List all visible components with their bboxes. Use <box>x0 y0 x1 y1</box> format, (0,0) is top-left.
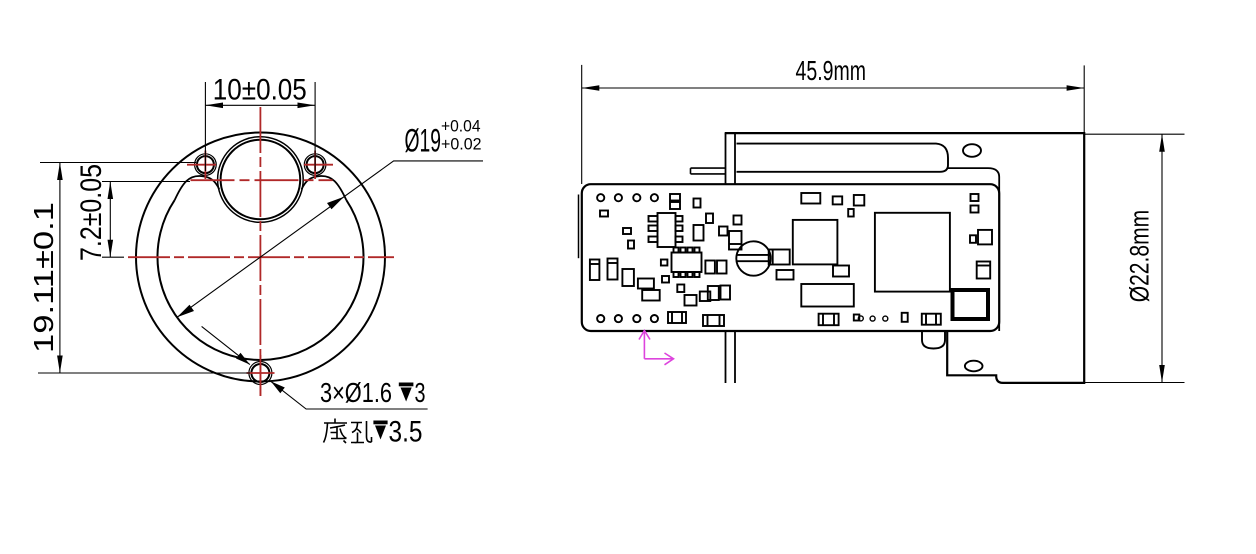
svg-text:3: 3 <box>415 377 426 408</box>
svg-text:10±0.05: 10±0.05 <box>213 74 307 107</box>
svg-text:3.5: 3.5 <box>389 416 423 449</box>
svg-text:Ø22.8mm: Ø22.8mm <box>1125 210 1155 303</box>
svg-text:+0.04: +0.04 <box>441 117 481 136</box>
svg-text:+0.02: +0.02 <box>441 135 482 154</box>
svg-text:19.11±0.1: 19.11±0.1 <box>28 202 59 353</box>
svg-text:7.2±0.05: 7.2±0.05 <box>75 164 108 261</box>
svg-text:Ø19: Ø19 <box>405 123 442 159</box>
svg-text:45.9mm: 45.9mm <box>796 55 867 86</box>
svg-text:3×Ø1.6: 3×Ø1.6 <box>320 377 392 408</box>
